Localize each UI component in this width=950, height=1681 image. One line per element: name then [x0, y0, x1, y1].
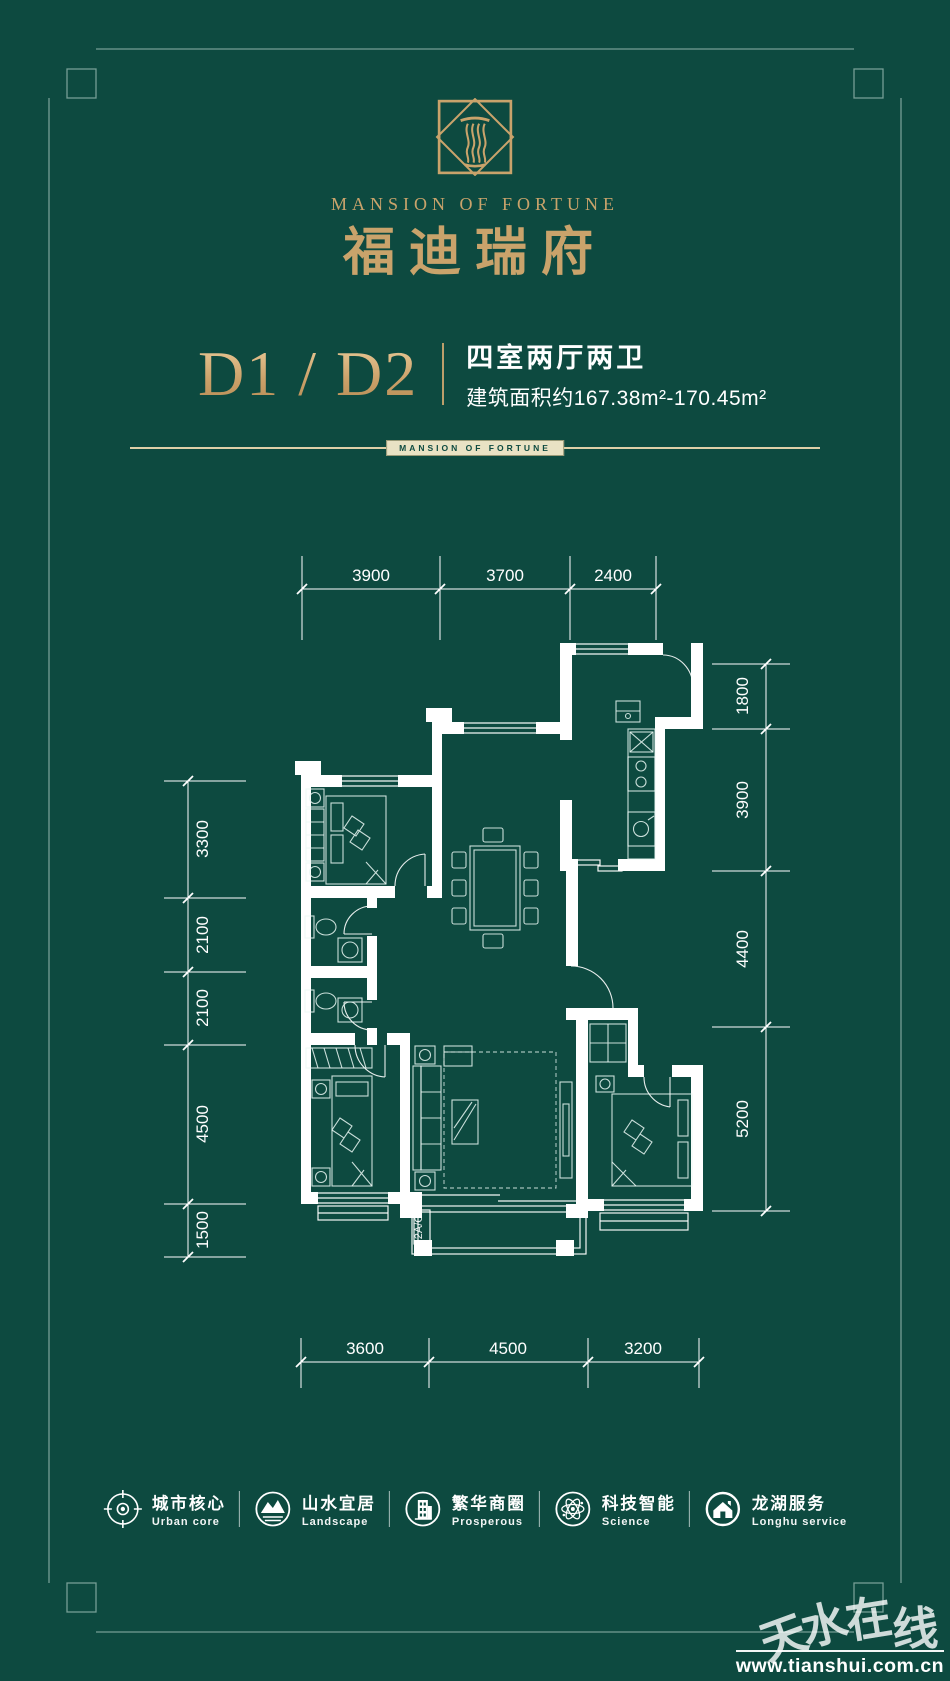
watermark-char: 在	[840, 1580, 896, 1652]
dim-top-1: 3900	[352, 566, 390, 585]
master-furniture	[590, 1024, 692, 1186]
frame-corner-tr	[854, 69, 883, 98]
dim-top-2: 3700	[486, 566, 524, 585]
dim-left-2: 2100	[193, 916, 212, 954]
watermark-url-block: www.tianshui.com.cn	[736, 1650, 944, 1679]
rule-seal-label: MANSION OF FORTUNE	[386, 440, 564, 456]
feature-cn-label: 繁华商圈	[452, 1490, 526, 1514]
brand-name-cn: 福迪瑞府	[0, 210, 950, 285]
entry-cabinet	[616, 701, 640, 722]
watermark-rule	[736, 1650, 944, 1653]
bedroom1-furniture	[306, 789, 386, 884]
dim-left-3: 2100	[193, 989, 212, 1027]
unit-name: D1 / D2	[198, 342, 418, 406]
dim-left-1: 3300	[193, 820, 212, 858]
atom-icon	[553, 1489, 593, 1529]
mountain-icon	[253, 1489, 293, 1529]
frame-corner-tl	[67, 69, 96, 98]
feature-en-label: Prosperous	[452, 1516, 526, 1528]
feature-cn-label: 龙湖服务	[752, 1490, 847, 1514]
feature-prosperous: 繁华商圈 Prosperous	[390, 1489, 539, 1529]
poster-page: 3900 3700 2400 1800 3900 4400 5200 3300 …	[0, 0, 950, 1681]
feature-longhu-service: 龙湖服务 Longhu service	[690, 1489, 860, 1529]
feature-landscape: 山水宜居 Landscape	[240, 1489, 389, 1529]
page-frame	[49, 49, 901, 1632]
unit-title-block: D1 / D2 四室两厅两卫 建筑面积约167.38m²-170.45m²	[198, 336, 767, 412]
plan-furniture	[305, 701, 692, 1190]
bedroom2-furniture	[306, 1048, 372, 1186]
feature-en-label: Landscape	[302, 1516, 376, 1528]
feature-cn-label: 科技智能	[602, 1490, 676, 1514]
dim-right-2: 3900	[733, 781, 752, 819]
dim-left-4: 4500	[193, 1105, 212, 1143]
unit-rooms: 四室两厅两卫	[466, 336, 766, 375]
plan-walls	[295, 643, 703, 1256]
title-divider	[442, 343, 444, 405]
feature-cn-label: 山水宜居	[302, 1490, 376, 1514]
feature-cn-label: 城市核心	[152, 1490, 226, 1514]
feature-en-label: Science	[602, 1516, 676, 1528]
watermark-text: 天 水 在 线	[754, 1587, 938, 1653]
brand-logo-icon	[434, 98, 516, 176]
dimension-labels: 3900 3700 2400 1800 3900 4400 5200 3300 …	[193, 566, 752, 1358]
dim-right-4: 5200	[733, 1100, 752, 1138]
dim-left-5: 1500	[193, 1211, 212, 1249]
feature-science: 科技智能 Science	[540, 1489, 689, 1529]
unit-area: 建筑面积约167.38m²-170.45m²	[466, 382, 766, 412]
living-furniture	[413, 1046, 572, 1190]
dim-top-3: 2400	[594, 566, 632, 585]
bathroom1-fixtures	[305, 916, 362, 962]
dining-set	[452, 828, 538, 948]
balcony-ac-label: 2A/C	[413, 1215, 425, 1240]
dim-bottom-3: 3200	[624, 1339, 662, 1358]
house-icon	[703, 1489, 743, 1529]
frame-corner-bl	[67, 1583, 96, 1612]
kitchen-fixtures	[628, 729, 655, 859]
feature-en-label: Longhu service	[752, 1516, 847, 1528]
feature-urban-core: 城市核心 Urban core	[90, 1489, 239, 1529]
building-icon	[403, 1489, 443, 1529]
compass-icon	[103, 1489, 143, 1529]
watermark-url: www.tianshui.com.cn	[736, 1655, 944, 1677]
dim-right-3: 4400	[733, 930, 752, 968]
features-row: 城市核心 Urban core 山水宜居 Landscape	[90, 1489, 860, 1529]
bathroom2-fixtures	[305, 990, 362, 1022]
dim-bottom-1: 3600	[346, 1339, 384, 1358]
feature-en-label: Urban core	[152, 1516, 226, 1528]
dim-bottom-2: 4500	[489, 1339, 527, 1358]
dim-right-1: 1800	[733, 677, 752, 715]
